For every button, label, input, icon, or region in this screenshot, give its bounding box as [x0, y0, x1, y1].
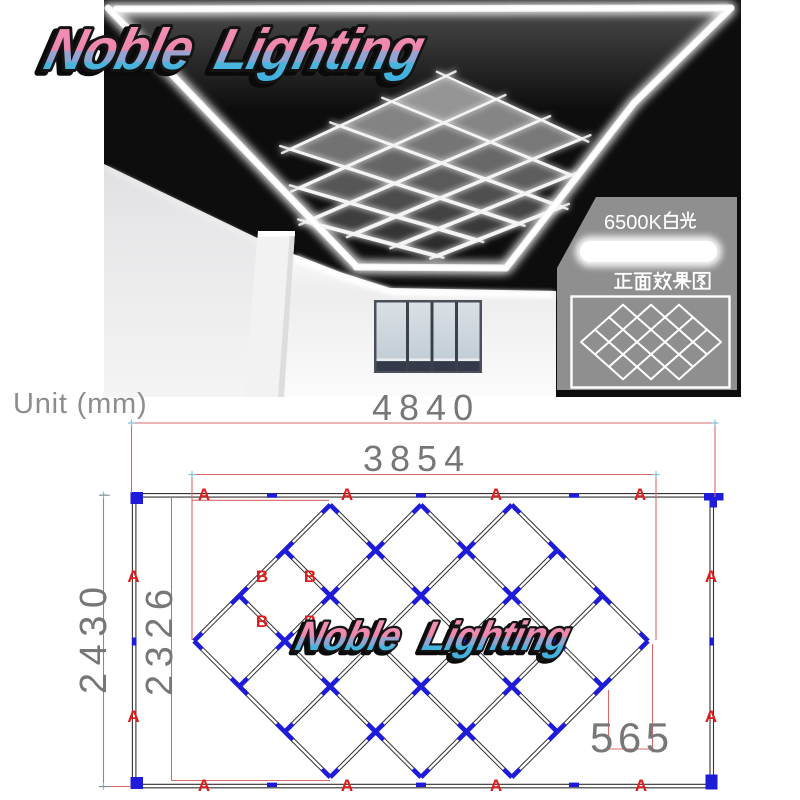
- svg-text:A: A: [634, 485, 646, 504]
- svg-text:A: A: [127, 567, 139, 586]
- svg-text:B: B: [256, 567, 268, 586]
- svg-text:A: A: [198, 776, 210, 795]
- svg-text:A: A: [341, 776, 353, 795]
- svg-text:A: A: [341, 485, 353, 504]
- svg-text:2326: 2326: [139, 581, 181, 696]
- svg-text:3854: 3854: [363, 438, 471, 479]
- svg-text:B: B: [304, 567, 316, 586]
- svg-text:A: A: [490, 776, 502, 795]
- svg-text:A: A: [490, 485, 502, 504]
- svg-text:A: A: [198, 485, 210, 504]
- svg-text:Lighting: Lighting: [209, 17, 431, 82]
- svg-text:4840: 4840: [372, 390, 480, 428]
- svg-text:Noble: Noble: [39, 17, 201, 82]
- svg-text:Noble: Noble: [292, 613, 406, 659]
- svg-text:2430: 2430: [73, 579, 115, 694]
- svg-text:A: A: [127, 707, 139, 726]
- svg-text:Unit (mm): Unit (mm): [13, 390, 147, 420]
- svg-text:B: B: [256, 612, 268, 631]
- svg-text:A: A: [635, 776, 647, 795]
- svg-text:A: A: [705, 567, 717, 586]
- svg-text:Lighting: Lighting: [418, 613, 575, 659]
- svg-text:565: 565: [590, 714, 674, 761]
- svg-text:A: A: [705, 707, 717, 726]
